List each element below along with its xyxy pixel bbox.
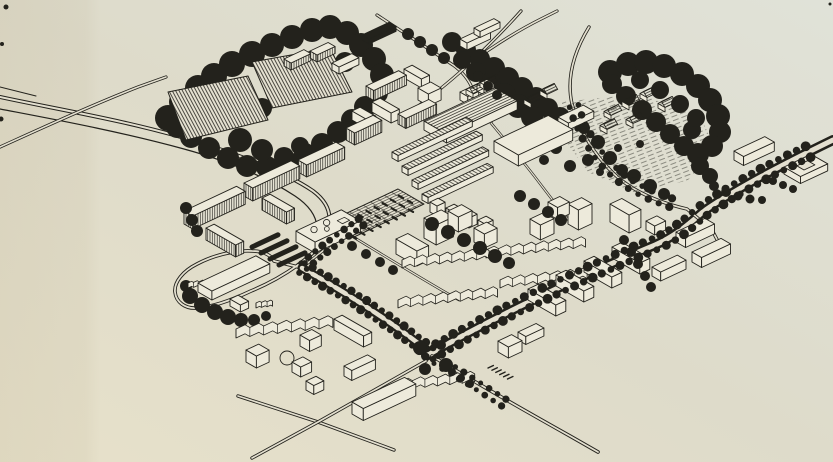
paper-left-shadow [0,0,100,462]
scanned-book-page [0,0,833,462]
aerial-perspective-illustration [0,0,833,462]
